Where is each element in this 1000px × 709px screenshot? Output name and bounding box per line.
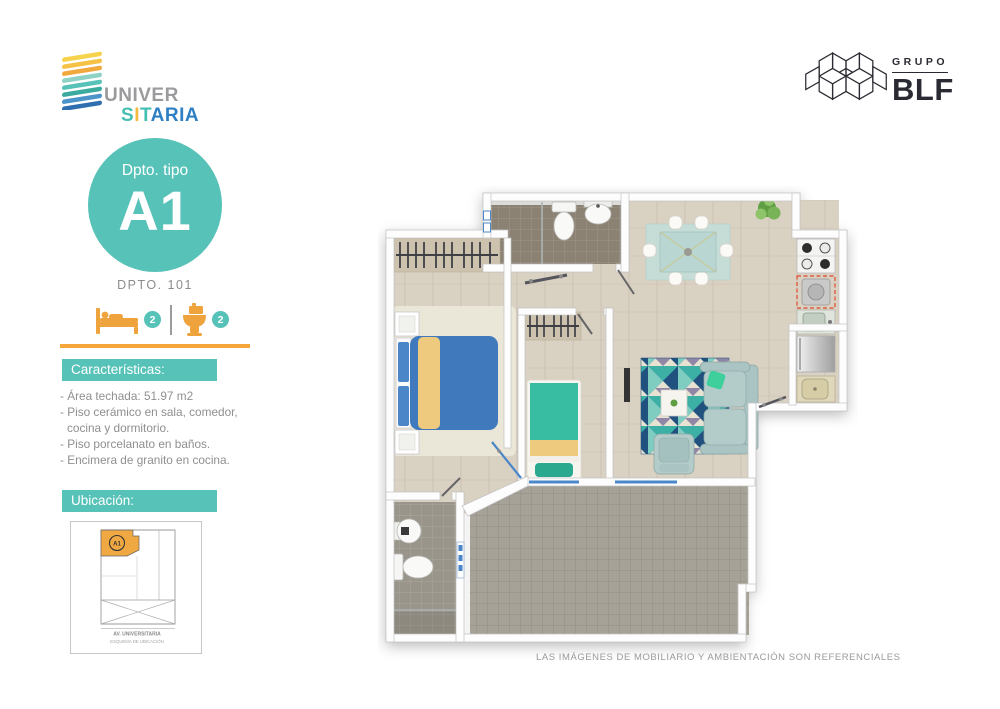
brand-line1: UNIVER [104,86,199,105]
unit-type-badge: Dpto. tipo A1 [88,138,222,272]
floor-plan [378,186,858,661]
washing-machine-projection [797,276,835,308]
toilet-top [552,202,576,240]
map-street-label: AV. UNIVERSITARIA [113,632,161,638]
brand-line2: SITARIA [121,106,199,125]
bathroom2-window [457,542,464,578]
main-bedroom-bed [392,306,516,456]
blf-name: BLF [892,74,954,105]
flyer-page: UNIVER SITARIA GRUPO BLF [0,0,1000,709]
features-list: - Área techada: 51.97 m2 - Piso cerámico… [60,388,268,468]
dining-set [643,216,733,285]
terrace-floor [470,483,749,635]
second-bedroom-bed [527,380,581,482]
coffee-table [661,390,687,416]
sink-bottom [393,519,421,543]
feature-item: - Piso porcelanato en baños. [60,436,268,452]
window-mark [484,223,491,232]
feature-item: - Piso cerámico en sala, comedor, cocina… [60,404,268,436]
refrigerator [797,336,835,372]
bathroom-count-badge: 2 [212,311,229,328]
armchair [654,434,694,474]
feature-item: - Encimera de granito en cocina. [60,452,268,468]
features-header: Características: [62,359,217,381]
tv [624,368,630,402]
universitaria-logo: UNIVER SITARIA [60,44,220,124]
map-caption: ESQUEMA DE UBICACIÓN [110,639,163,644]
toilet-icon [181,303,208,336]
unit-number: DPTO. 101 [88,278,222,292]
location-header: Ubicación: [62,490,217,512]
bedroom-count-badge: 2 [144,311,161,328]
amenities-divider [170,305,172,335]
stripes-logo-icon [60,46,106,110]
map-unit-label: A1 [113,542,121,548]
grupo-blf-logo: GRUPO BLF [800,44,970,124]
blf-geometric-icon [800,44,892,114]
blf-wordmark: GRUPO BLF [892,56,954,105]
blf-group-label: GRUPO [892,56,954,68]
window-mark [484,211,491,220]
unit-type-code: A1 [88,178,222,243]
sink-top [584,201,612,224]
closet-second-bedroom [525,312,581,340]
brand-wordmark: UNIVER SITARIA [104,86,199,125]
bed-icon [94,305,140,335]
toilet-bottom [393,554,433,580]
location-map: A1 AV. UNIVERSITARIA ESQUEMA DE UBICACIÓ… [70,521,202,654]
feature-item: - Área techada: 51.97 m2 [60,388,268,404]
kitchen-appliances [797,239,835,402]
laundry-sink [797,376,835,402]
amenities-row: 2 2 [94,303,229,336]
orange-divider-rule [60,344,250,348]
disclaimer-text: LAS IMÁGENES DE MOBILIARIO Y AMBIENTACIÓ… [536,652,901,663]
